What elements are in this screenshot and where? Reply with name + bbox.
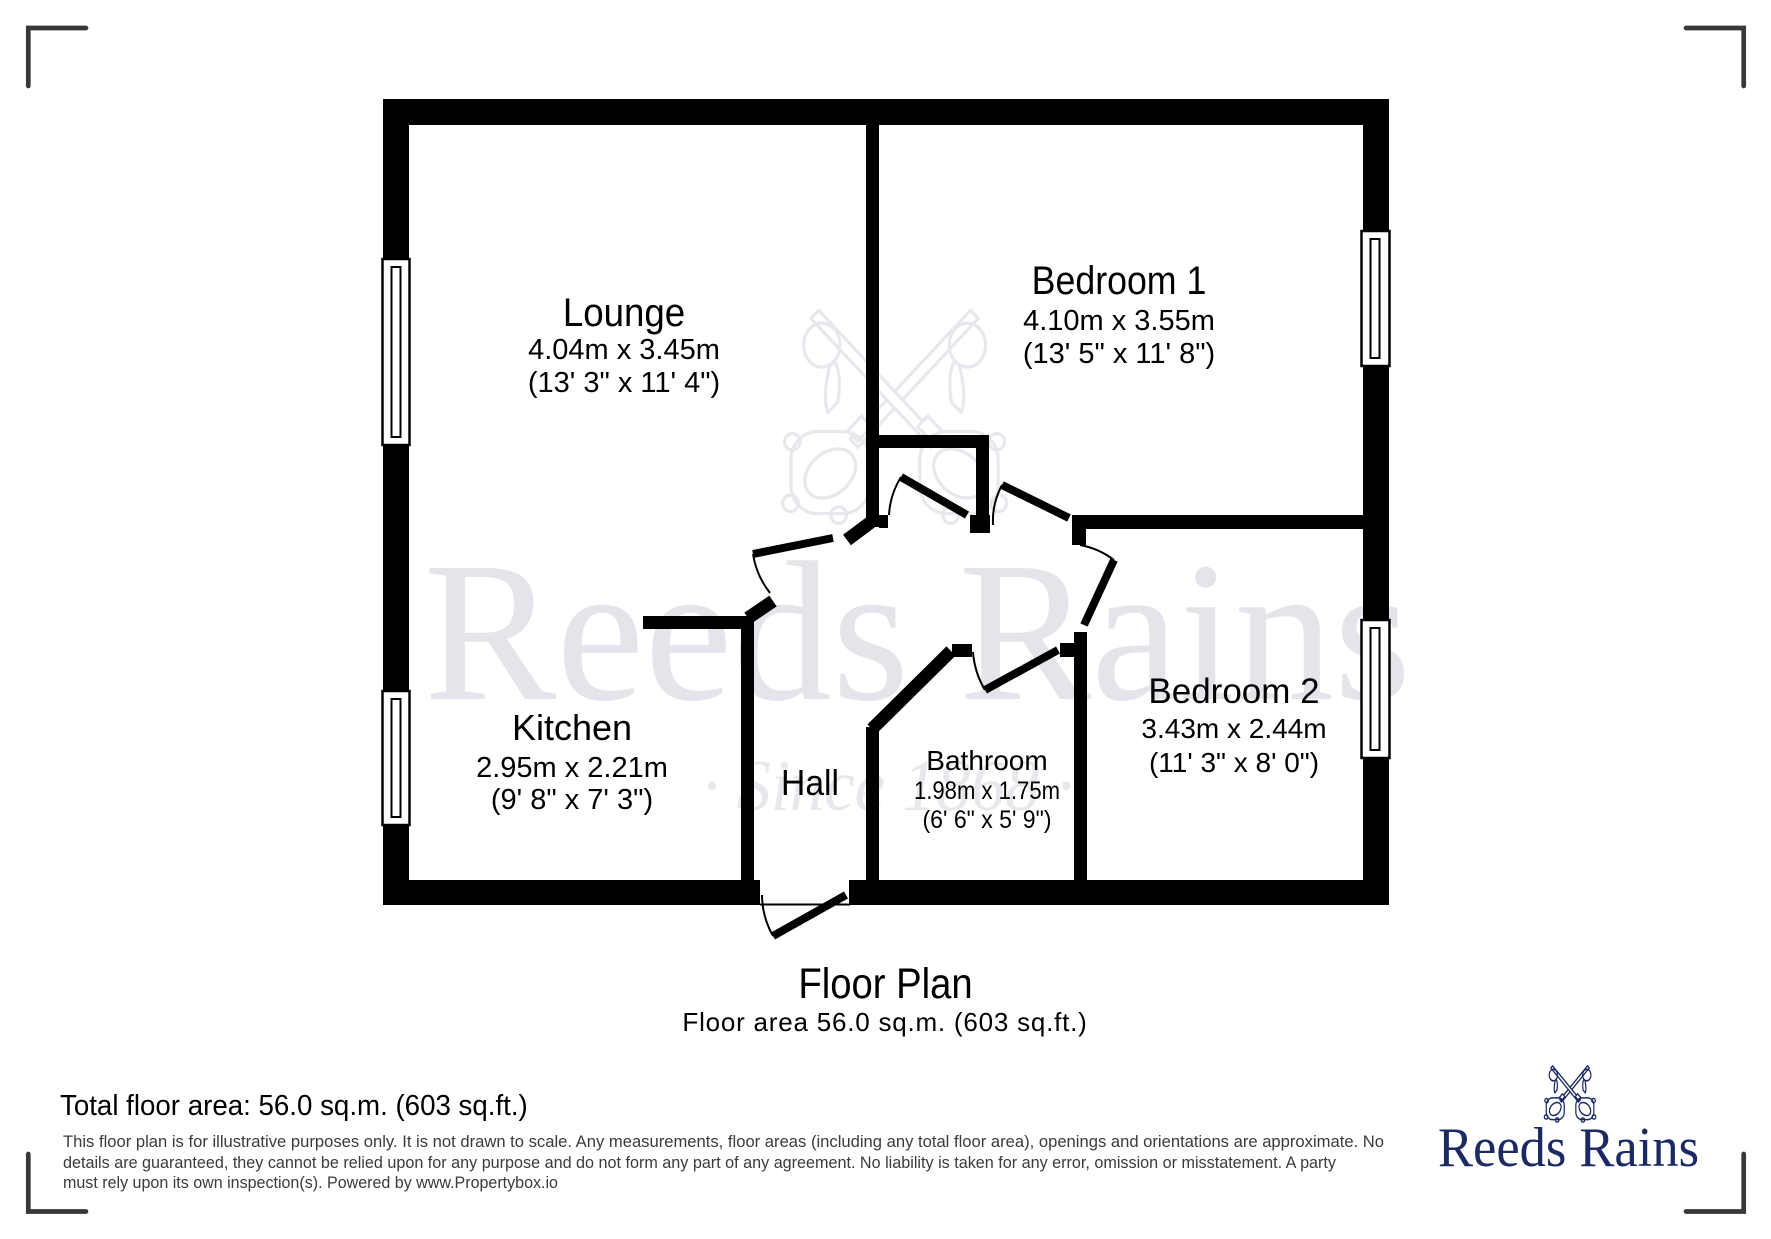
svg-text:Reeds Rains: Reeds Rains: [1438, 1117, 1699, 1179]
svg-text:4.04m x 3.45m: 4.04m x 3.45m: [528, 334, 720, 366]
svg-text:2.95m x 2.21m: 2.95m x 2.21m: [476, 752, 668, 784]
svg-text:Lounge: Lounge: [563, 291, 685, 336]
svg-text:Floor Plan: Floor Plan: [798, 959, 972, 1007]
svg-text:Bedroom 1: Bedroom 1: [1032, 259, 1207, 303]
svg-text:4.10m x 3.55m: 4.10m x 3.55m: [1023, 305, 1215, 337]
svg-text:Floor area 56.0 sq.m. (603 sq.: Floor area 56.0 sq.m. (603 sq.ft.): [682, 1007, 1087, 1037]
svg-text:Kitchen: Kitchen: [512, 707, 632, 748]
svg-text:Bathroom: Bathroom: [926, 745, 1047, 776]
svg-text:(6' 6" x 5' 9"): (6' 6" x 5' 9"): [923, 806, 1052, 834]
svg-text:(9' 8" x 7' 3"): (9' 8" x 7' 3"): [491, 784, 653, 816]
svg-text:Total floor area: 56.0 sq.m. (: Total floor area: 56.0 sq.m. (603 sq.ft.…: [60, 1089, 528, 1122]
svg-text:Bedroom 2: Bedroom 2: [1148, 672, 1319, 711]
svg-text:Hall: Hall: [781, 763, 839, 803]
svg-text:(13' 3" x 11' 4"): (13' 3" x 11' 4"): [528, 367, 720, 399]
svg-text:3.43m x 2.44m: 3.43m x 2.44m: [1141, 713, 1326, 744]
svg-text:(13' 5" x 11' 8"): (13' 5" x 11' 8"): [1023, 338, 1215, 370]
svg-text:(11' 3" x 8' 0"): (11' 3" x 8' 0"): [1149, 747, 1319, 778]
svg-text:1.98m x 1.75m: 1.98m x 1.75m: [914, 777, 1060, 805]
